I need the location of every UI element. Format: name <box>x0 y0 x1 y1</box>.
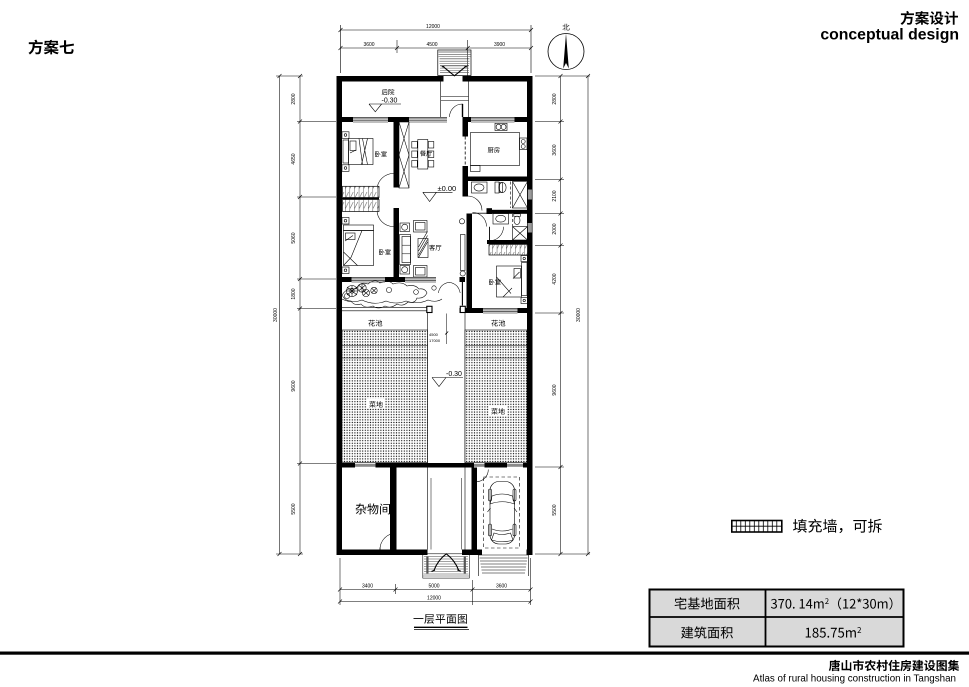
svg-text:12000: 12000 <box>427 596 441 602</box>
svg-text:5500: 5500 <box>552 504 558 515</box>
svg-text:3600: 3600 <box>363 42 374 48</box>
svg-text:2100: 2100 <box>552 190 558 201</box>
svg-text:30000: 30000 <box>273 308 279 322</box>
svg-text:2800: 2800 <box>552 93 558 104</box>
svg-text:4650: 4650 <box>291 153 297 164</box>
svg-text:±0.00: ±0.00 <box>438 184 457 193</box>
svg-text:conceptual design: conceptual design <box>820 27 959 44</box>
svg-text:5000: 5000 <box>428 584 439 590</box>
svg-text:3600: 3600 <box>552 144 558 155</box>
svg-text:4200: 4200 <box>552 273 558 284</box>
svg-text:2800: 2800 <box>291 93 297 104</box>
svg-text:4500: 4500 <box>426 42 437 48</box>
svg-text:5500: 5500 <box>291 503 297 514</box>
svg-text:-0.30: -0.30 <box>446 371 462 378</box>
svg-text:9600: 9600 <box>552 384 558 395</box>
svg-text:2000: 2000 <box>552 223 558 234</box>
svg-text:30000: 30000 <box>576 308 582 322</box>
svg-text:4500: 4500 <box>429 332 439 337</box>
svg-text:3400: 3400 <box>362 584 373 590</box>
svg-text:1800: 1800 <box>291 288 297 299</box>
svg-text:12000: 12000 <box>426 24 440 30</box>
svg-text:17000: 17000 <box>429 338 441 343</box>
svg-text:Atlas of rural housing constru: Atlas of rural housing construction in T… <box>753 674 956 685</box>
svg-text:5060: 5060 <box>291 232 297 243</box>
svg-text:-0.30: -0.30 <box>382 98 398 105</box>
svg-text:9600: 9600 <box>291 380 297 391</box>
svg-text:3600: 3600 <box>496 584 507 590</box>
svg-text:3900: 3900 <box>494 42 505 48</box>
